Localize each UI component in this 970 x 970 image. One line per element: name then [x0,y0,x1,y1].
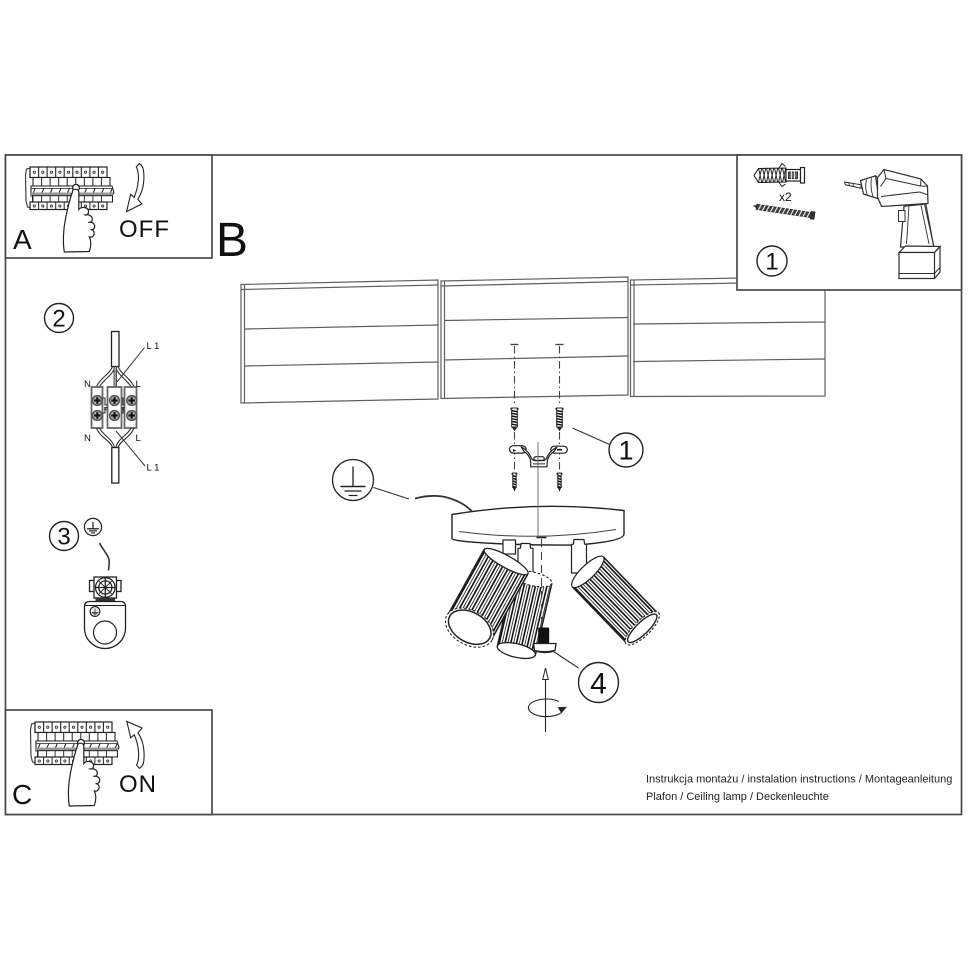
svg-text:C: C [12,779,32,810]
svg-text:L 1: L 1 [147,341,160,352]
svg-text:B: B [216,214,248,267]
svg-text:4: 4 [590,667,607,700]
svg-text:OFF: OFF [119,216,170,243]
svg-text:1: 1 [765,249,778,276]
svg-text:3: 3 [57,524,70,551]
svg-text:N: N [84,379,91,390]
svg-text:L 1: L 1 [147,463,160,474]
svg-text:x2: x2 [779,190,792,204]
svg-text:Plafon / Ceiling lamp / Decken: Plafon / Ceiling lamp / Deckenleuchte [646,791,829,803]
svg-text:ON: ON [119,771,157,798]
svg-text:L: L [136,379,141,390]
svg-text:2: 2 [52,306,65,333]
svg-text:Instrukcja montażu / instalati: Instrukcja montażu / instalation instruc… [646,774,952,786]
svg-text:1: 1 [618,436,633,466]
svg-text:A: A [13,224,32,255]
svg-text:L: L [136,433,141,444]
svg-text:N: N [84,433,91,444]
